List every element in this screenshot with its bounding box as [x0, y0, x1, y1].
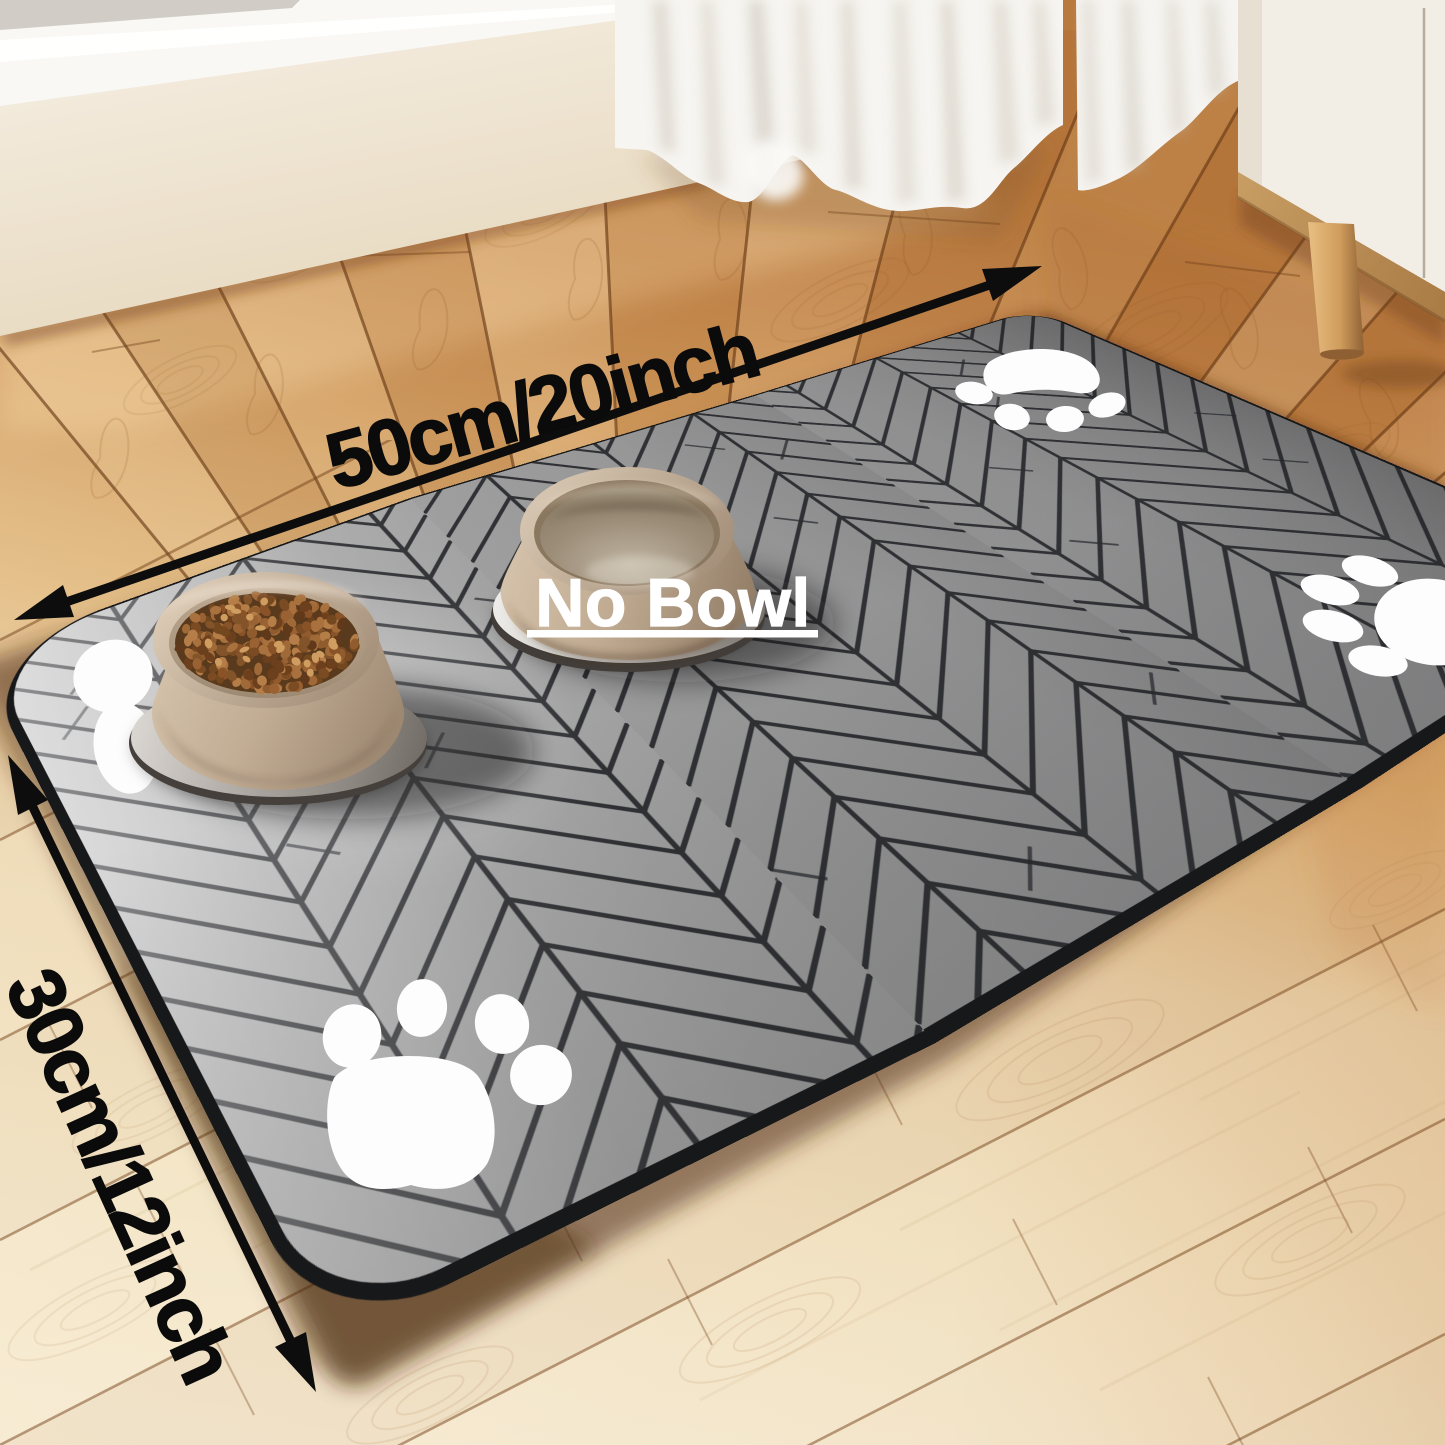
svg-text:50cm/20inch: 50cm/20inch — [317, 305, 766, 507]
svg-text:No Bowl: No Bowl — [535, 565, 810, 641]
